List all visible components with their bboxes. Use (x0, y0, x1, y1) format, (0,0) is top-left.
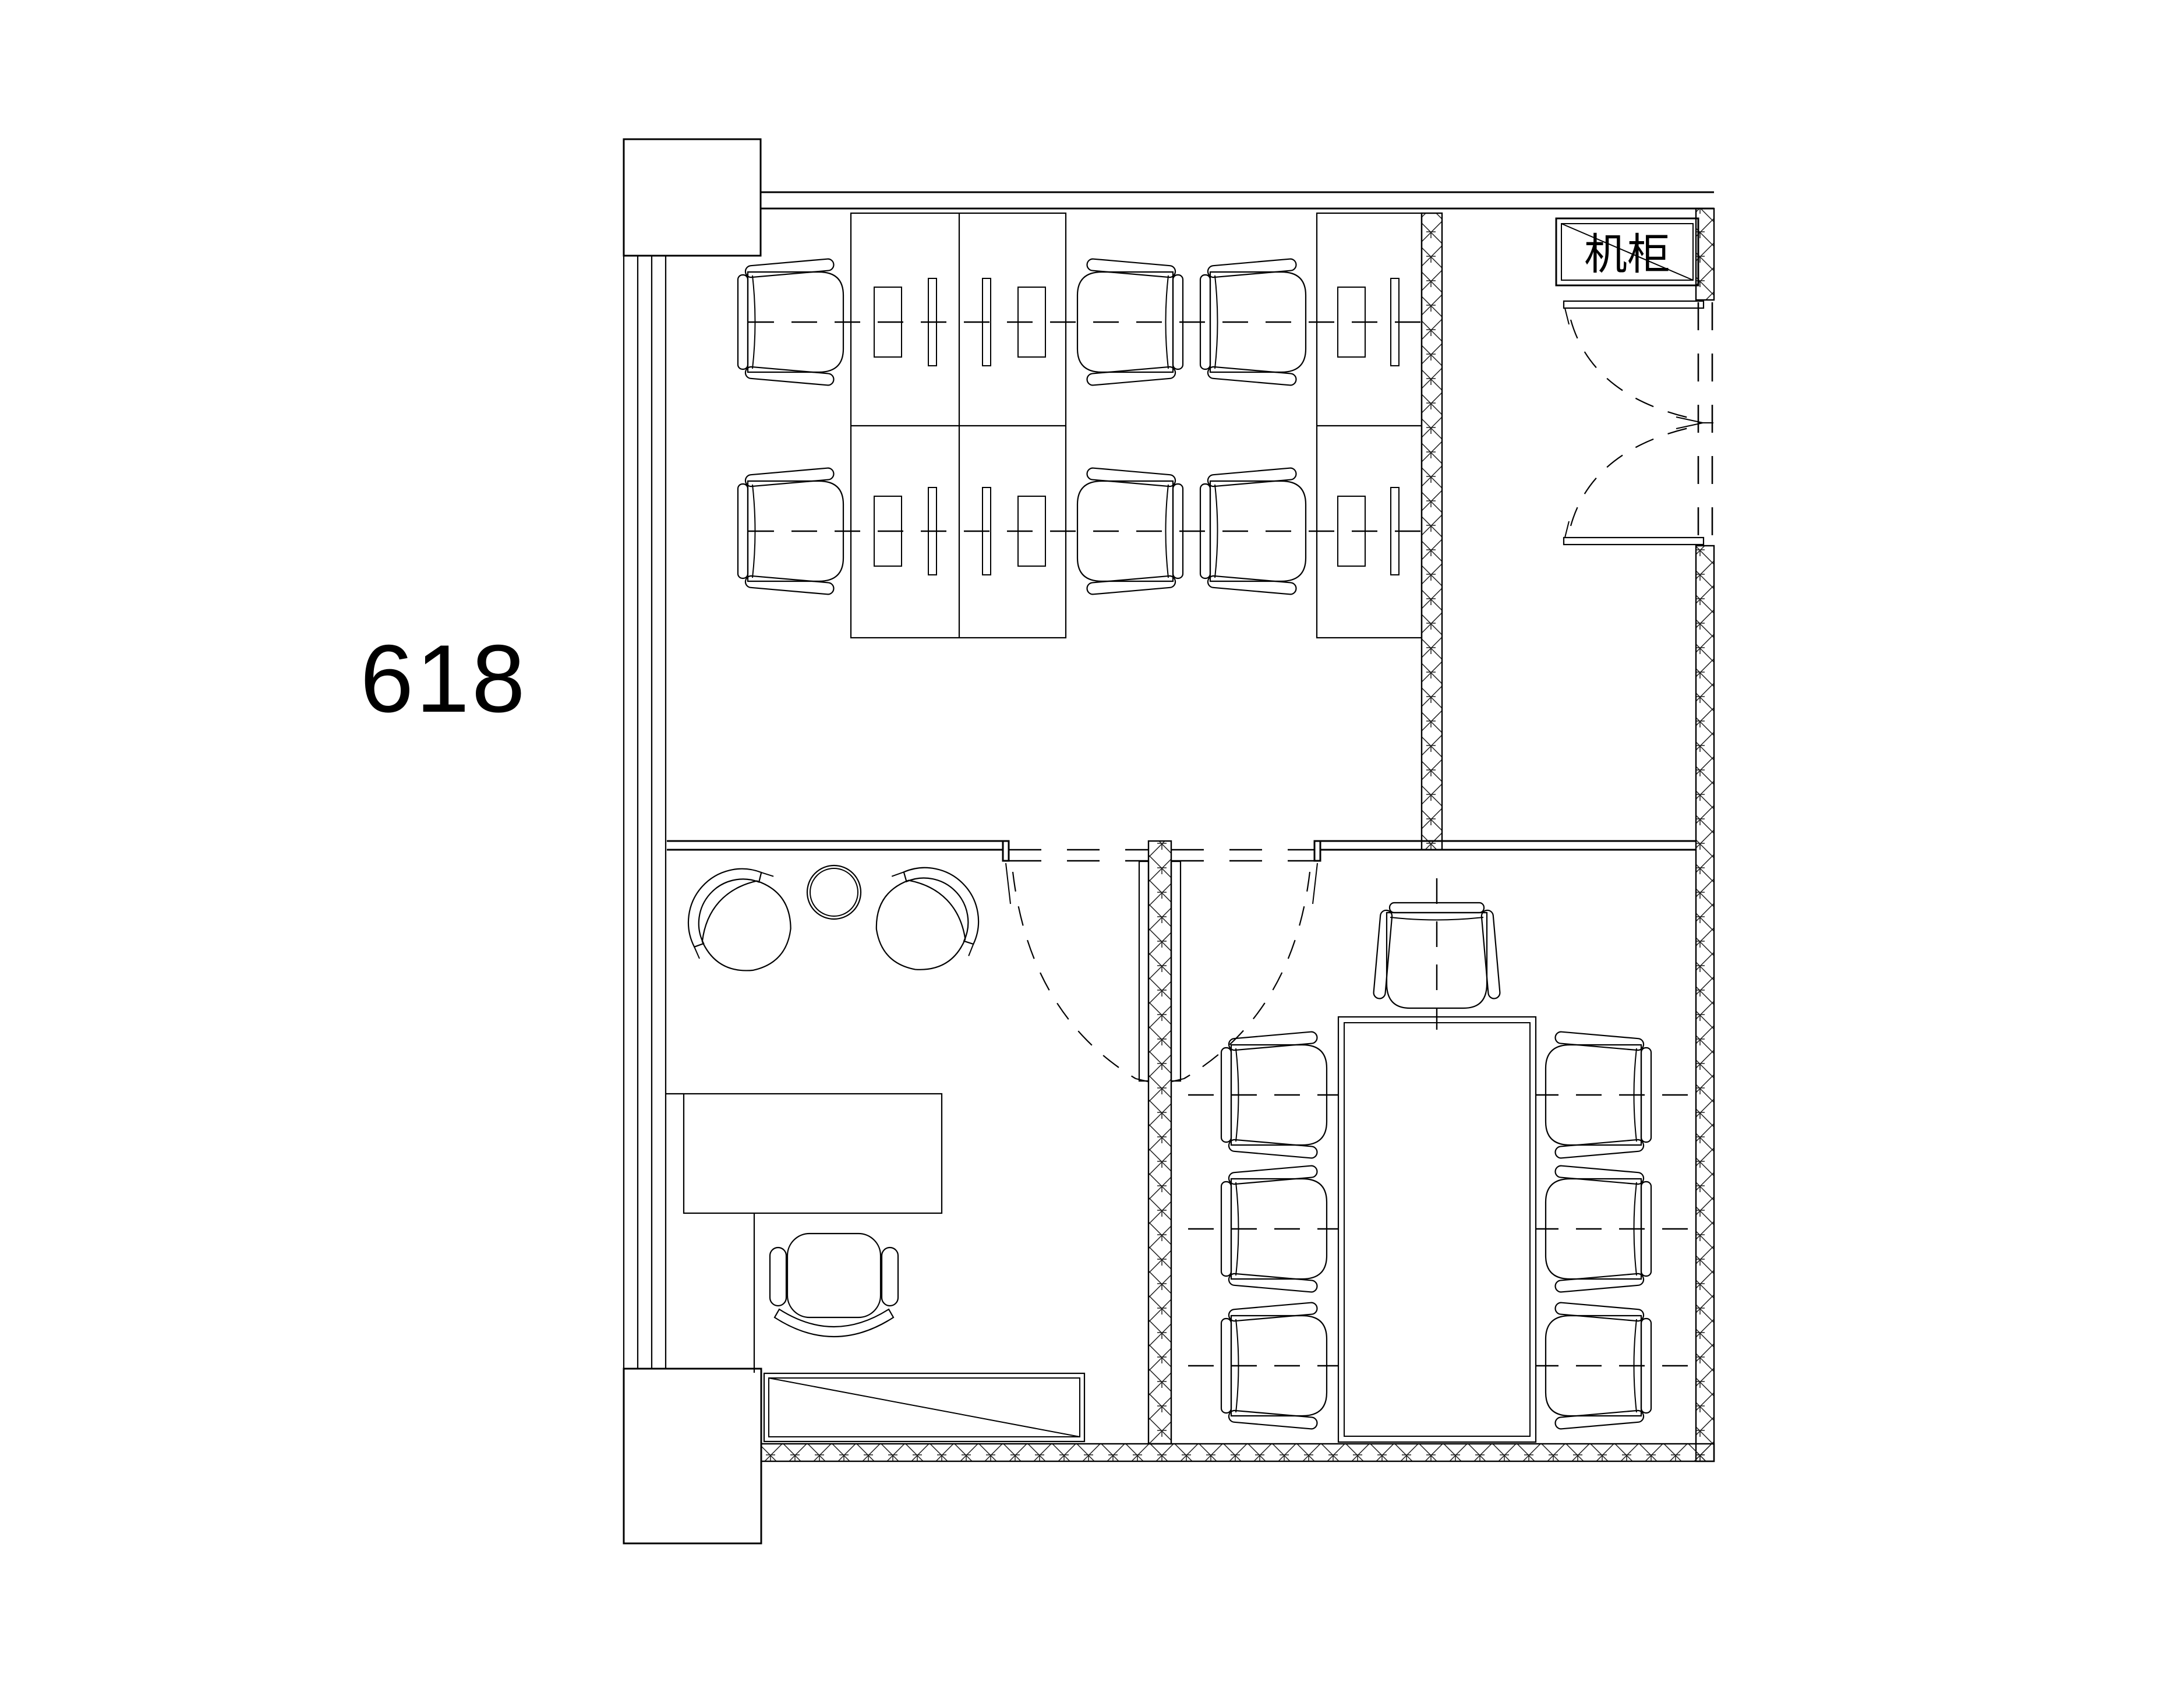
top-wall (761, 192, 1714, 209)
central-partition-wall (1148, 841, 1171, 1444)
room-number-label: 618 (360, 625, 527, 732)
lounge-door-leaf (1139, 861, 1148, 1081)
right-wall (1696, 209, 1714, 1461)
partition-wall-right (1313, 841, 1696, 904)
lounge-chair-left (665, 846, 817, 998)
meeting-head-chair (1373, 903, 1500, 1008)
lounge-chair-right (850, 845, 1002, 997)
lounge-area (665, 845, 1084, 1441)
floor-plan-canvas: 机柜 (0, 0, 2184, 1689)
entry-door-leaf-top (1564, 301, 1704, 308)
door-header-lounge (1009, 850, 1148, 861)
conference-table (1338, 1017, 1536, 1442)
door-jamb-right (1314, 841, 1320, 861)
desk-cluster-left (851, 213, 1066, 638)
floor-plan-page: 机柜 (0, 0, 2184, 1689)
meeting-room (1188, 878, 1694, 1442)
entry-door-arc-top (1571, 320, 1696, 419)
entry-door-leaf-bottom (1564, 538, 1704, 545)
meeting-door (1171, 861, 1310, 1082)
cabinet-label: 机柜 (1584, 230, 1670, 278)
pillar-bottom-left (624, 1369, 761, 1543)
executive-chair (770, 1234, 898, 1337)
desk-cluster-right (1317, 213, 1422, 638)
pillar-top-left (624, 139, 761, 256)
entry-door-arc-bottom (1571, 426, 1696, 526)
meeting-door-swing-arc (1184, 872, 1310, 1079)
meeting-door-leaf (1171, 861, 1181, 1081)
bottom-wall (761, 1444, 1714, 1461)
window-wall (624, 256, 666, 1369)
corridor-partition-wall (1422, 213, 1442, 850)
sideboard (764, 1373, 1084, 1441)
lounge-round-table (807, 865, 861, 919)
lounge-door (1013, 861, 1148, 1082)
workstation-area (738, 213, 1434, 638)
executive-desk (684, 1094, 942, 1213)
lounge-door-swing-arc (1013, 872, 1136, 1079)
server-cabinet: 机柜 (1556, 218, 1698, 285)
door-header-meeting (1171, 850, 1314, 861)
walls (667, 192, 1714, 1461)
entry-double-door (1564, 301, 1713, 545)
door-jamb-left (1003, 841, 1009, 861)
